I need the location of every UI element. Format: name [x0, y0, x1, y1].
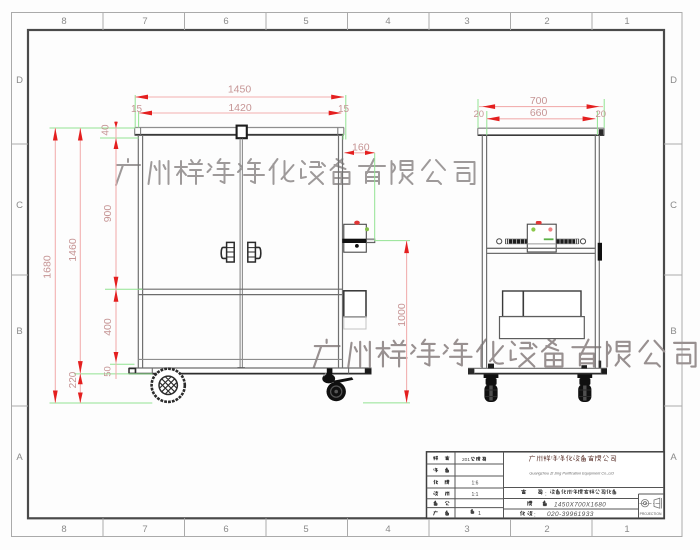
svg-text:4: 4 [385, 524, 390, 535]
svg-text:50: 50 [103, 366, 114, 377]
svg-text:40: 40 [101, 124, 112, 136]
svg-text:A: A [670, 452, 677, 463]
svg-text:5: 5 [303, 524, 308, 535]
svg-text:C: C [16, 200, 23, 211]
svg-text:15: 15 [338, 104, 350, 115]
svg-text:15: 15 [131, 104, 143, 115]
svg-text:D: D [16, 75, 23, 86]
svg-text:1420: 1420 [228, 102, 252, 114]
svg-text:900: 900 [102, 205, 114, 223]
svg-text:160: 160 [352, 141, 370, 153]
svg-text:1680: 1680 [41, 255, 53, 279]
svg-text:B: B [670, 326, 676, 337]
svg-text:8: 8 [61, 524, 66, 535]
svg-text:Guangzhou Zi Jing Purification: Guangzhou Zi Jing Purification Equipment… [529, 472, 614, 476]
svg-text:6: 6 [223, 524, 228, 535]
svg-text:1:1: 1:1 [472, 492, 479, 498]
svg-text:400: 400 [102, 318, 114, 336]
svg-text:2: 2 [544, 524, 549, 535]
svg-text:C: C [670, 200, 677, 211]
svg-text:1000: 1000 [396, 303, 408, 327]
svg-text:D: D [670, 75, 677, 86]
svg-text:1: 1 [624, 524, 629, 535]
svg-text:1450: 1450 [228, 84, 252, 96]
svg-text:5: 5 [303, 16, 308, 27]
svg-text:1460: 1460 [67, 238, 79, 262]
svg-text:1:6: 1:6 [472, 481, 479, 487]
svg-text:1: 1 [624, 16, 629, 27]
svg-text:1: 1 [478, 511, 481, 517]
svg-text:20: 20 [474, 109, 485, 120]
svg-text:7: 7 [142, 16, 147, 27]
svg-text:PROJECTION: PROJECTION [640, 512, 662, 516]
svg-text:1450X700X1680: 1450X700X1680 [554, 502, 606, 509]
svg-text:220: 220 [68, 371, 79, 388]
svg-text:A: A [16, 452, 23, 463]
svg-text:3: 3 [464, 524, 469, 535]
svg-text:B: B [16, 326, 22, 337]
svg-text:201: 201 [462, 457, 470, 463]
svg-text:2: 2 [544, 16, 549, 27]
svg-text:8: 8 [61, 16, 66, 27]
svg-text:20: 20 [596, 109, 607, 120]
svg-text:4: 4 [385, 16, 390, 27]
svg-text:6: 6 [223, 16, 228, 27]
svg-text:700: 700 [530, 95, 548, 107]
svg-text:7: 7 [142, 524, 147, 535]
svg-text:020-39961933: 020-39961933 [547, 511, 594, 518]
svg-text:3: 3 [464, 16, 469, 27]
svg-text:660: 660 [530, 107, 548, 119]
